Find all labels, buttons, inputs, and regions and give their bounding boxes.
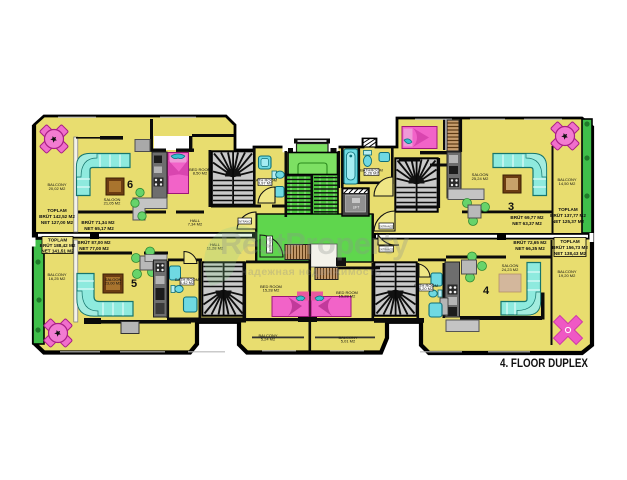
svg-text:BRÜT 87,00 M2: BRÜT 87,00 M2 xyxy=(77,239,111,245)
svg-text:20,02 M2: 20,02 M2 xyxy=(49,186,66,191)
svg-text:25,24 M2: 25,24 M2 xyxy=(472,176,489,181)
svg-text:BRÜT 156,73 M2: BRÜT 156,73 M2 xyxy=(552,244,588,250)
svg-text:BRÜT 72,65 M2: BRÜT 72,65 M2 xyxy=(513,239,547,245)
svg-text:NET 65,17 M2: NET 65,17 M2 xyxy=(84,226,114,231)
svg-text:6,42 M2: 6,42 M2 xyxy=(180,280,195,285)
svg-text:16,25 M2: 16,25 M2 xyxy=(49,276,66,281)
svg-text:3,97 M2: 3,97 M2 xyxy=(258,181,273,186)
svg-text:BRÜT 71,34 M2: BRÜT 71,34 M2 xyxy=(81,219,115,225)
svg-text:15,28 M2: 15,28 M2 xyxy=(339,294,356,299)
svg-text:5,26 M2: 5,26 M2 xyxy=(364,171,379,176)
svg-text:NET 63,37 M2: NET 63,37 M2 xyxy=(512,221,542,226)
svg-text:LIFT: LIFT xyxy=(353,206,360,210)
svg-text:TOPLAM: TOPLAM xyxy=(47,208,66,213)
svg-text:15,28 M2: 15,28 M2 xyxy=(263,288,280,293)
svg-text:5,24 M2: 5,24 M2 xyxy=(261,337,276,342)
svg-text:5,01 M2: 5,01 M2 xyxy=(341,339,356,344)
svg-text:5: 5 xyxy=(131,278,137,290)
svg-text:TOPLAM: TOPLAM xyxy=(558,207,577,212)
svg-text:NET 138,43 M2: NET 138,43 M2 xyxy=(554,251,587,256)
svg-text:RestProperty: RestProperty xyxy=(220,226,410,261)
svg-text:NET 125,37 M2: NET 125,37 M2 xyxy=(552,219,585,224)
svg-text:BRÜT 69,77 M2: BRÜT 69,77 M2 xyxy=(510,214,544,220)
svg-text:надежная недвижимость: надежная недвижимость xyxy=(241,266,382,278)
svg-text:NET 141,51 M2: NET 141,51 M2 xyxy=(41,249,74,254)
svg-text:24,23 M2: 24,23 M2 xyxy=(502,267,519,272)
svg-text:ENTRANCE: ENTRANCE xyxy=(238,220,253,224)
svg-text:4. FLOOR DUPLEX: 4. FLOOR DUPLEX xyxy=(500,358,588,370)
svg-text:BRÜT 188,42 M2: BRÜT 188,42 M2 xyxy=(40,242,76,248)
svg-text:3: 3 xyxy=(508,201,514,213)
svg-text:6: 6 xyxy=(127,179,133,191)
svg-text:TOPLAM: TOPLAM xyxy=(560,239,579,244)
svg-text:BRÜT 142,52 M2: BRÜT 142,52 M2 xyxy=(39,213,75,219)
svg-text:19,20 M2: 19,20 M2 xyxy=(559,273,576,278)
svg-text:4,20 M2: 4,20 M2 xyxy=(419,286,434,291)
svg-text:23,00 M2: 23,00 M2 xyxy=(105,281,122,286)
svg-text:NET 77,00 M2: NET 77,00 M2 xyxy=(79,246,109,251)
svg-text:21,05 M2: 21,05 M2 xyxy=(104,201,121,206)
svg-text:NET 127,00 M2: NET 127,00 M2 xyxy=(41,220,74,225)
svg-text:TOPLAM: TOPLAM xyxy=(48,238,67,243)
svg-text:14,50 M2: 14,50 M2 xyxy=(559,181,576,186)
svg-text:8,50 M2: 8,50 M2 xyxy=(193,171,208,176)
svg-text:4: 4 xyxy=(483,285,490,297)
svg-text:NET 66,35 M2: NET 66,35 M2 xyxy=(515,246,545,251)
svg-text:7,34 M2: 7,34 M2 xyxy=(188,222,203,227)
svg-text:BRÜT 137,77 M2: BRÜT 137,77 M2 xyxy=(550,212,586,218)
